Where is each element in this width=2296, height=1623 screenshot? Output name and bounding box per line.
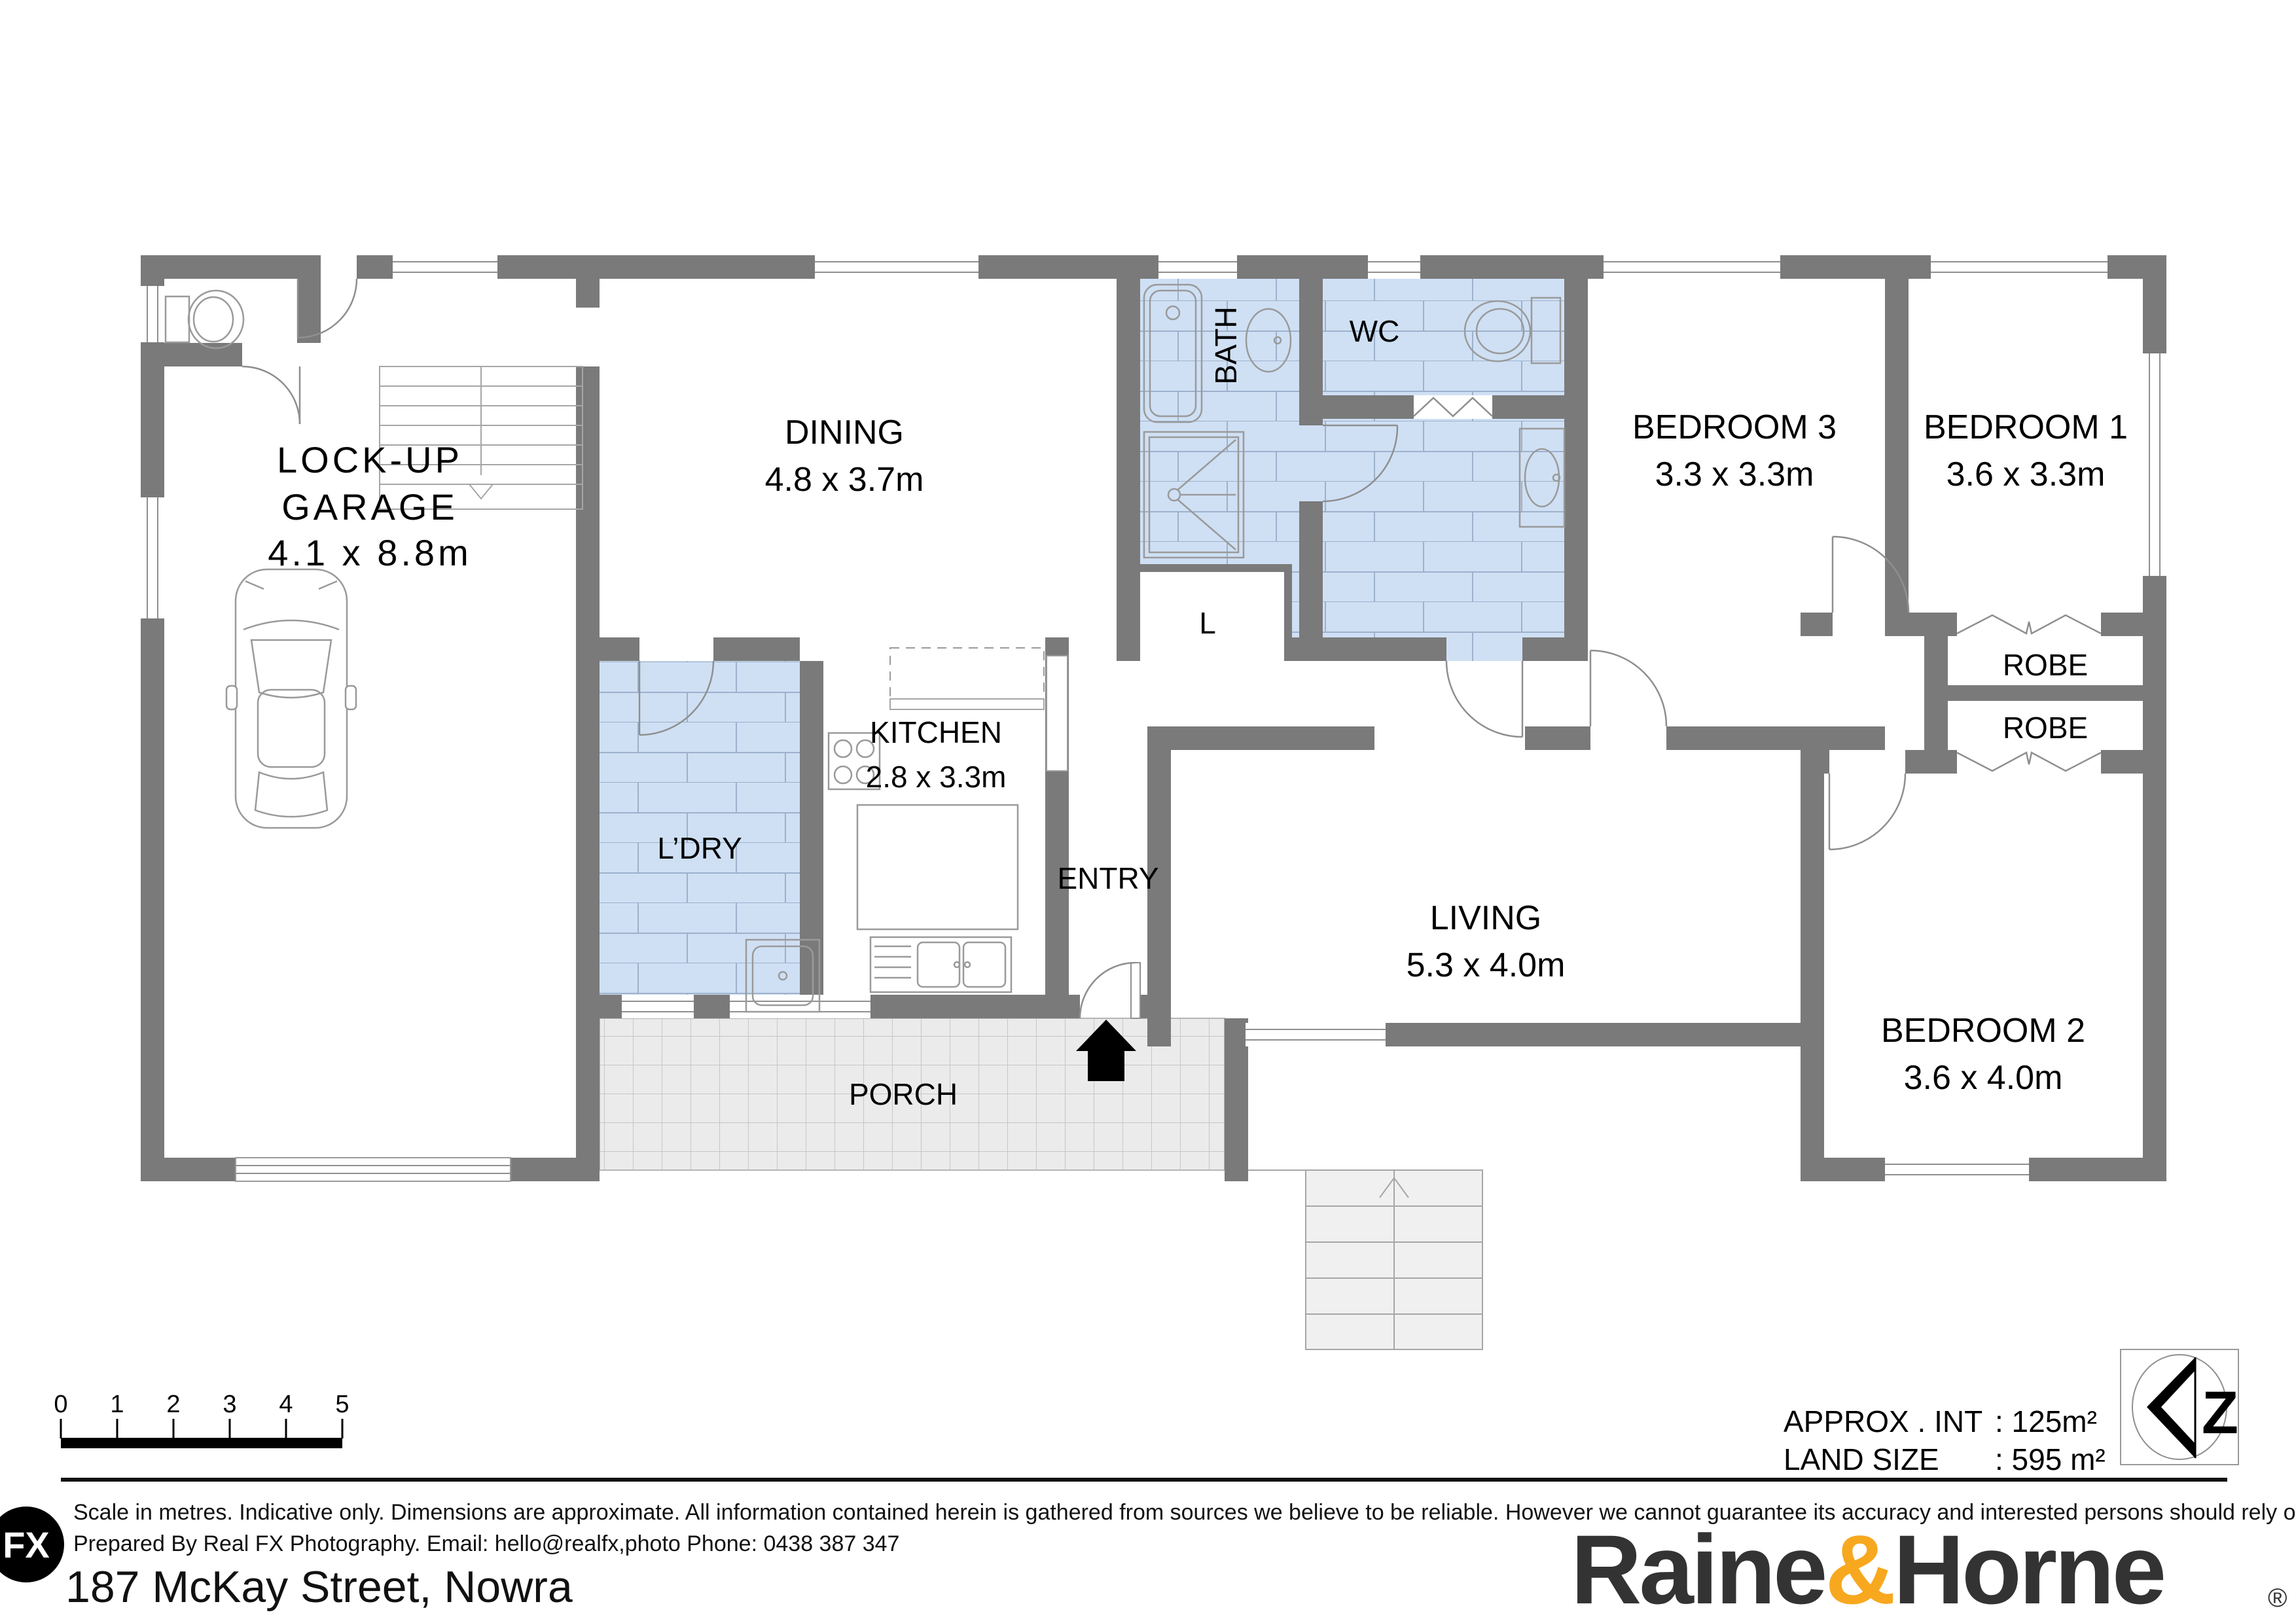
fx-logo-text: FX [3,1524,50,1565]
bed3-door [1590,651,1666,726]
scale-tick-4: 4 [279,1391,293,1418]
car-icon [226,569,356,828]
compass-letter: Z [2202,1380,2238,1446]
floorplan-page: LOCK-UP GARAGE 4.1 x 8.8m DINING 4.8 x 3… [0,0,2296,1623]
robe2-label: ROBE [2003,711,2088,745]
brand-horne: Horne [1893,1514,2164,1623]
bed3-label: BEDROOM 3 [1632,408,1837,446]
scale-tick-0: 0 [54,1391,67,1418]
scale-tick-2: 2 [166,1391,180,1418]
separator-line [61,1478,2227,1482]
linen-closet [1140,564,1292,661]
brand-raine: Raine [1571,1514,1825,1623]
brand-ampersand: & [1825,1514,1893,1623]
living-label: LIVING [1430,899,1542,937]
scale-tick-5: 5 [335,1391,349,1418]
doors [242,279,1909,1018]
kitchen-overhead-cabinets [890,648,1044,709]
living-window [1246,1023,1386,1046]
approx-int-label: APPROX . INT [1784,1404,1982,1438]
scale-tick-1: 1 [110,1391,124,1418]
toilet-door [242,366,300,424]
brand-logo: Raine&Horne ® [1571,1514,2287,1623]
land-size-value: : 595 m² [1995,1442,2106,1476]
toilet-window [141,286,164,342]
garage-label2: GARAGE [281,486,458,527]
robe1-bifold [1957,613,2101,636]
robe2-bifold [1957,750,2101,774]
bed1-top-window [1931,255,2108,279]
svg-text:Raine&Horne: Raine&Horne [1571,1514,2164,1623]
bed2-window [1885,1158,2029,1181]
wc-bifold [1414,395,1492,419]
porch-steps [1225,1170,1482,1349]
garage-dims: 4.1 x 8.8m [268,532,471,573]
bath-label: BATH [1209,306,1243,384]
garage-top-window [393,255,497,279]
garage-side-window [141,497,164,618]
bed3-dims: 3.3 x 3.3m [1655,455,1814,493]
bed1-dims: 3.6 x 3.3m [1946,455,2106,493]
disclaimer-line2: Prepared By Real FX Photography. Email: … [73,1531,899,1556]
bed3-window [1604,255,1780,279]
wc-window [1368,255,1420,279]
bed2-label: BEDROOM 2 [1881,1012,2085,1050]
scale-bar: 0 1 2 3 4 5 [54,1391,349,1448]
bed2-door [1829,774,1905,849]
garage-label: LOCK-UP [277,439,463,480]
laundry-window [622,995,694,1018]
land-size-label: LAND SIZE [1784,1442,1939,1476]
bath-window [1158,255,1237,279]
toilet-icon [166,291,243,348]
hall-door [1446,661,1522,737]
dining-label: DINING [785,414,904,452]
kitchen-label: KITCHEN [870,715,1002,749]
entry-pantry [1047,656,1067,771]
kitchen-window [730,995,870,1018]
laundry-label: L’DRY [657,831,742,865]
approx-int-value: : 125m² [1995,1404,2097,1438]
kitchen-island [857,805,1018,929]
linen-label: L [1199,606,1216,640]
robe1-label: ROBE [2003,648,2088,682]
entry-label: ENTRY [1057,861,1158,895]
scale-tick-3: 3 [223,1391,236,1418]
bed1-side-window [2143,353,2166,576]
floorplan-svg: LOCK-UP GARAGE 4.1 x 8.8m DINING 4.8 x 3… [0,0,2296,1623]
dining-window [815,255,978,279]
kitchen-dims: 2.8 x 3.3m [866,760,1007,794]
kitchen-sink-icon [870,937,1011,992]
wc-label: WC [1350,314,1400,348]
brand-registered: ® [2268,1584,2287,1613]
porch-label: PORCH [849,1077,958,1111]
dining-dims: 4.8 x 3.7m [765,461,924,499]
living-dims: 5.3 x 4.0m [1407,946,1566,984]
front-door [1080,963,1140,1018]
bed2-dims: 3.6 x 4.0m [1904,1059,2063,1097]
garage-door [236,1158,511,1181]
compass-icon: Z [2121,1349,2238,1465]
area-summary: APPROX . INT : 125m² LAND SIZE : 595 m² [1784,1404,2106,1476]
address: 187 McKay Street, Nowra [65,1562,573,1612]
bed1-label: BEDROOM 1 [1924,408,2128,446]
fx-logo-icon: FX [0,1507,64,1582]
